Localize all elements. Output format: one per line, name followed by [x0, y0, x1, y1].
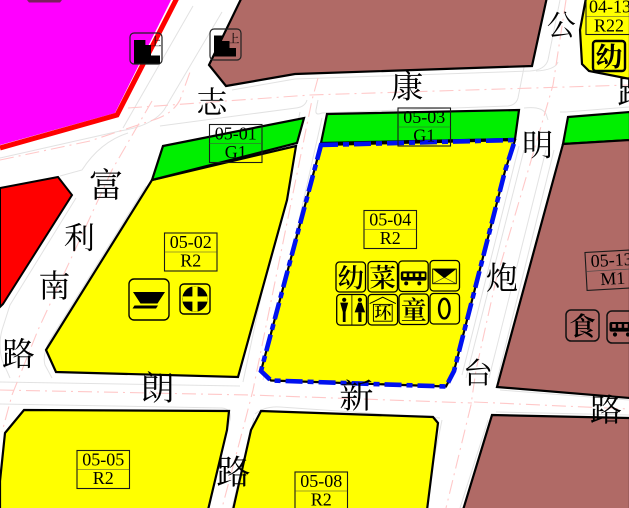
svg-text:G1: G1: [413, 126, 435, 146]
svg-text:05-08: 05-08: [300, 471, 342, 491]
svg-text:R22: R22: [594, 16, 624, 36]
svg-text:05-03: 05-03: [403, 107, 445, 127]
svg-text:05-02: 05-02: [170, 232, 212, 252]
svg-text:R2: R2: [180, 251, 201, 271]
svg-text:R2: R2: [93, 468, 114, 488]
svg-text:04-13: 04-13: [589, 0, 629, 17]
svg-text:M1: M1: [600, 268, 626, 289]
svg-text:R2: R2: [311, 490, 332, 508]
svg-text:G1: G1: [225, 142, 247, 162]
svg-text:R2: R2: [380, 228, 401, 248]
svg-text:05-04: 05-04: [369, 210, 411, 230]
svg-text:05-01: 05-01: [215, 124, 257, 144]
svg-text:05-05: 05-05: [82, 450, 124, 470]
